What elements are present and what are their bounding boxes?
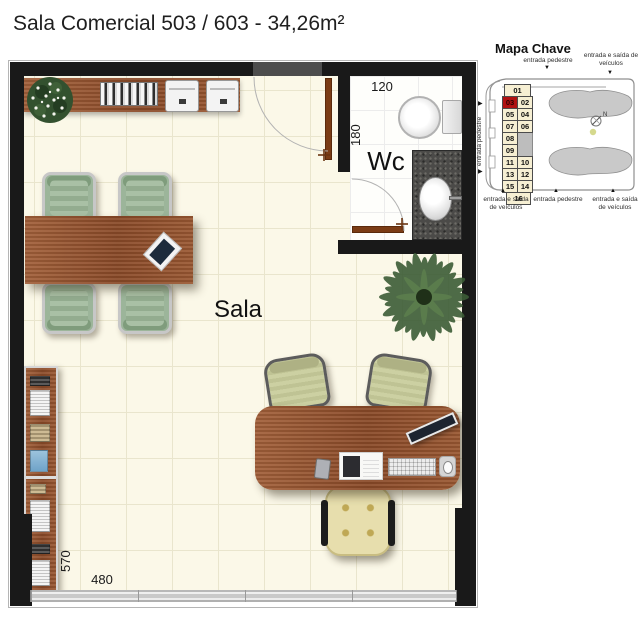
key-map-label-bottom-pedestrian: entrada pedestre: [531, 196, 585, 204]
building-block-icon: [549, 147, 632, 175]
wall-column-bottom-right: [455, 508, 476, 606]
wall-column-bottom-left: [10, 514, 32, 606]
key-map-label-top-pedestrian: entrada pedestre: [505, 57, 591, 65]
floor-plan-page: Sala Comercial 503 / 603 - 34,26m²: [0, 0, 640, 634]
toilet: [398, 96, 462, 140]
toilet-tank: [442, 100, 462, 134]
svg-text:N: N: [603, 112, 607, 118]
arrow-down-icon: ▼: [544, 65, 550, 71]
binder-row: [100, 82, 158, 106]
sink: [419, 177, 452, 221]
executive-chair: [325, 486, 391, 556]
chair-seat: [126, 290, 164, 326]
book-stack: [30, 450, 48, 472]
notebook-screen: [343, 456, 360, 477]
arrow-right-icon: ▶: [478, 168, 483, 175]
printer-detail: [210, 88, 235, 90]
key-map-title: Mapa Chave: [495, 41, 571, 56]
phone: [314, 458, 331, 480]
book-stack: [30, 544, 50, 554]
open-notebook: [339, 452, 383, 480]
dimension-wc-depth: 180: [348, 106, 363, 146]
toilet-bowl: [398, 96, 441, 139]
arrow-up-icon: ▲: [553, 188, 559, 194]
arrow-up-icon: ▲: [500, 188, 506, 194]
printer: [206, 80, 239, 112]
keyboard: [388, 458, 436, 476]
chair-seat: [126, 180, 164, 216]
key-map-label-bottom-vehicles-right: entrada e saída de veículos: [588, 196, 640, 212]
key-map-label-top-vehicles: entrada e saída de veículos: [583, 52, 639, 68]
room-label: Sala: [198, 296, 278, 324]
wall-wc-bottom: [338, 240, 476, 254]
entrance-door: [325, 78, 332, 160]
faucet: [449, 196, 462, 200]
arrow-right-icon: ▶: [478, 100, 483, 107]
printer-button: [220, 99, 227, 104]
book-stack: [30, 376, 50, 386]
arrow-down-icon: ▼: [607, 70, 613, 76]
window-strip: [30, 590, 457, 602]
key-map-unit-06: 06: [517, 120, 533, 133]
entrance-threshold: [253, 62, 322, 76]
shelf-divider: [26, 476, 56, 479]
dimension-room-depth: 570: [58, 528, 73, 572]
building-block-icon: [549, 90, 632, 118]
wall-top-right: [322, 62, 476, 76]
wc-door: [352, 226, 404, 233]
chair-seat: [50, 180, 88, 216]
book-stack: [30, 424, 50, 442]
mouse: [443, 461, 453, 474]
printer-button: [179, 99, 186, 104]
meeting-chair: [42, 282, 96, 334]
north-indicator-icon: N: [591, 112, 607, 126]
map-dot-icon: [590, 129, 596, 135]
chair-seat: [50, 290, 88, 326]
notebook-page: [363, 457, 379, 477]
book-stack: [30, 560, 50, 586]
page-title: Sala Comercial 503 / 603 - 34,26m²: [13, 12, 345, 36]
printer: [165, 80, 199, 112]
meeting-chair: [118, 282, 172, 334]
key-map-core-block: [517, 132, 533, 157]
book-stack: [30, 500, 50, 532]
key-map-label-bottom-vehicles-left: entrada e saída de veículos: [479, 196, 533, 212]
dimension-room-width: 480: [74, 572, 130, 587]
printer-detail: [169, 88, 195, 90]
arrow-up-icon: ▲: [610, 188, 616, 194]
book-stack: [30, 484, 46, 494]
chair-back: [376, 356, 427, 374]
book-stack: [30, 390, 50, 416]
key-map-label-left-pedestrian: entrada pedestre: [476, 114, 483, 166]
chair-back: [269, 356, 320, 374]
dimension-wc-width: 120: [352, 79, 412, 94]
wc-label: Wc: [364, 146, 408, 177]
wall-top-left: [10, 62, 253, 76]
mousepad: [439, 456, 456, 477]
